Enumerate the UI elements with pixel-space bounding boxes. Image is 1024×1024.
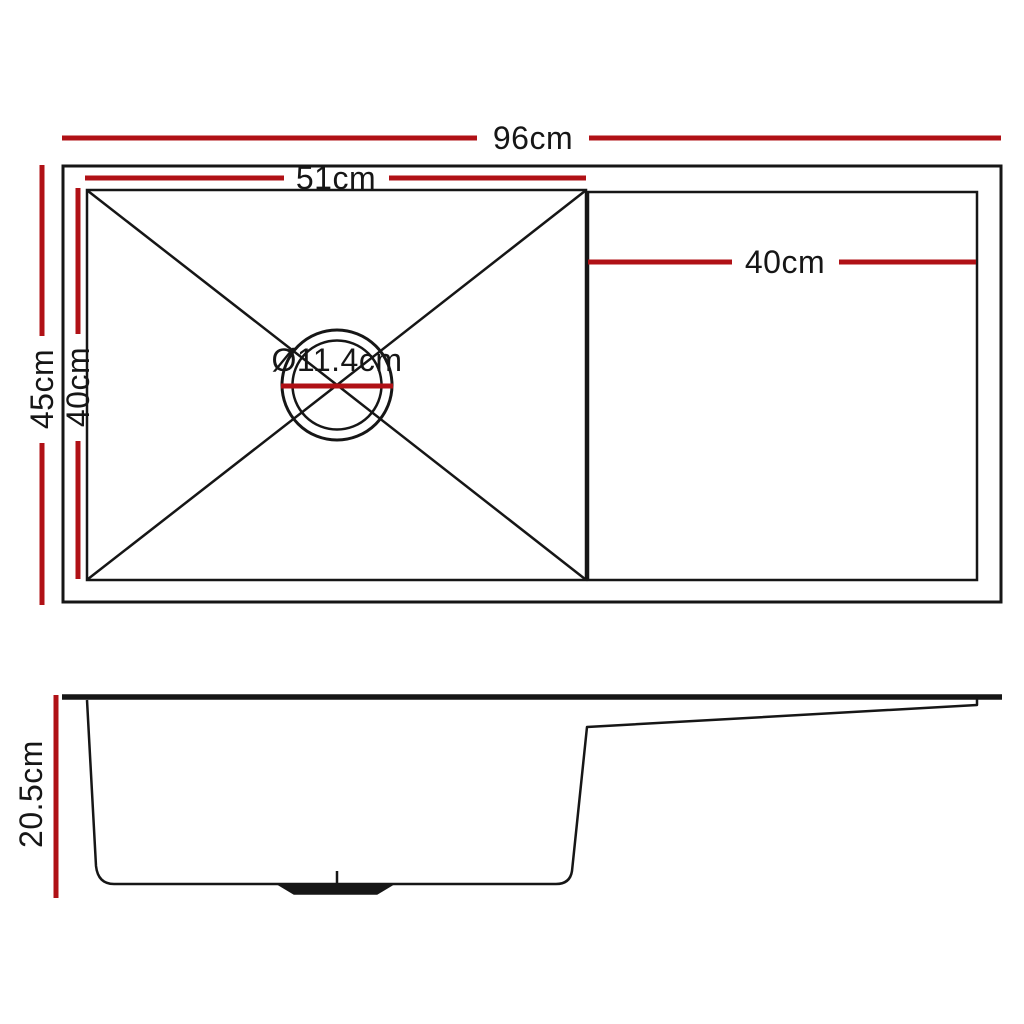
dimension-overall-height: 20.5cm [13, 695, 56, 898]
bowl-diagonal-bottom-right [337, 385, 585, 579]
bowl-width-label: 51cm [296, 160, 376, 196]
overall-width-label: 96cm [493, 120, 573, 156]
side-view-profile [87, 699, 977, 884]
drainer-width-label: 40cm [745, 244, 825, 280]
diagram-canvas: Ø11.4cm 96cm 51cm 40cm 45cm [0, 0, 1024, 1024]
drain-diameter-label: Ø11.4cm [272, 342, 403, 378]
overall-height-label: 20.5cm [13, 740, 49, 848]
bowl-depth-label: 40cm [60, 347, 96, 427]
dimension-overall-depth: 45cm [24, 165, 60, 605]
side-view-drain-fitting [279, 885, 392, 894]
dimension-drainer-width: 40cm [588, 244, 976, 280]
top-view: Ø11.4cm 96cm 51cm 40cm 45cm [24, 120, 1001, 605]
overall-depth-label: 45cm [24, 349, 60, 429]
bowl-diagonal-bottom-left [88, 385, 337, 579]
sink-dimension-diagram: Ø11.4cm 96cm 51cm 40cm 45cm [0, 0, 1024, 1024]
dimension-overall-width: 96cm [62, 120, 1001, 156]
dimension-bowl-depth: 40cm [60, 188, 96, 579]
side-view: 20.5cm [13, 695, 1002, 898]
